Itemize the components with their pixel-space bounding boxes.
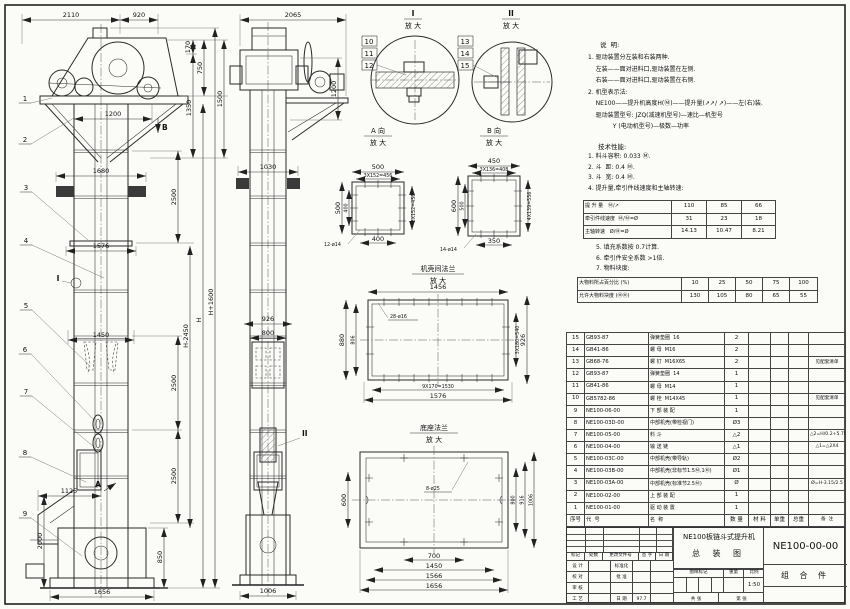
note-line: 右装——面对进料口,驱动装置在右侧. [588, 75, 840, 87]
balloon-5: 5 [24, 302, 28, 310]
marker-b: B [162, 123, 168, 132]
cell [789, 333, 809, 345]
rev-col-date: 日 期 [656, 552, 673, 560]
cell [771, 490, 789, 502]
drawing-title: 总 装 图 [674, 548, 764, 559]
cell [771, 393, 789, 405]
note-line: 驱动装置型号: JZQ(减速机型号)—速比—机型号 [588, 110, 840, 122]
cell: 见配套清单 [809, 393, 846, 405]
empty-cell [764, 586, 847, 604]
dim-fl-1456: 1456 [430, 283, 447, 291]
balloon-12: 12 [365, 62, 374, 70]
cell: △1=△2X4 [809, 442, 846, 454]
detail-II: II 放 大 13 14 15 [458, 9, 552, 122]
stamp-header: 图样标记 重量 比例 [674, 568, 764, 577]
view-b-detail: B 向 放 大 450 3X136=408 600 500 4X139=556 … [440, 126, 533, 253]
balloon-3: 3 [24, 184, 28, 192]
cell [809, 417, 846, 429]
cell [749, 357, 771, 369]
note2-line: 5. 填充系数按 0.7计算. [596, 243, 836, 254]
cell [749, 466, 771, 478]
cell: 8.21 [742, 226, 776, 239]
bom-header-row: 序号 代 号 名 称 数 量 材 料 单重 总重 备 注 [567, 515, 846, 527]
bom-row: 7NE100-05-00料 斗△2△2=H/0.2+5.75 [567, 430, 846, 442]
cell: 110 [672, 201, 707, 214]
balloon-10: 10 [365, 38, 374, 46]
cell [749, 369, 771, 381]
dim-side-926: 926 [262, 315, 274, 323]
cell [749, 381, 771, 393]
view-b-zoom-label: 放 大 [486, 138, 502, 147]
cell: 100 [790, 278, 818, 291]
dim-front-2500b: 2500 [170, 375, 178, 392]
cell: 中部机壳(带检视门) [649, 417, 725, 429]
bom-row: 6NE100-04-00输 送 链△1△1=△2X4 [567, 442, 846, 454]
side-view-dimensions: 2065 1200 1030 926 800 1006 II [238, 11, 346, 600]
dim-fl-806: 806 [351, 335, 357, 344]
cell [789, 405, 809, 417]
balloon-13: 13 [461, 38, 470, 46]
cell: 螺 母 M14 [649, 381, 725, 393]
dim-a-456-right: 3X152=456 [411, 194, 417, 223]
speed-table-row: 提 升 量 Ⓜ/↗1108566 [584, 201, 776, 214]
cell: 14 [567, 345, 585, 357]
cell [789, 490, 809, 502]
cell [789, 369, 809, 381]
cell: 5 [567, 454, 585, 466]
dim-b-500: 500 [460, 201, 466, 210]
dim-a-500-top: 500 [372, 163, 384, 171]
cell: 弹簧垫圈 14 [649, 369, 725, 381]
marker-a: A [95, 480, 101, 489]
product-name: NE100板链斗式提升机 [674, 532, 764, 542]
balloon-7: 7 [24, 388, 28, 396]
cell: 提 升 量 Ⓜ/↗ [584, 201, 672, 214]
dim-fl-1576: 1576 [430, 392, 447, 400]
cell: 弹簧垫圈 16 [649, 333, 725, 345]
cell: 18 [742, 213, 776, 226]
lump-size-table: 大物料所占百分比 (%)10255075100允许大物料块度 (ⓂⓂ)13010… [577, 277, 818, 303]
cell: 料 斗 [649, 430, 725, 442]
cell [809, 490, 846, 502]
front-view-dimensions: 2110 920 170 750 1350 1500 1200 B 1680 2… [22, 11, 228, 601]
cell: Ø=H-3.15/2.5 [809, 478, 846, 490]
cell [771, 417, 789, 429]
dim-fl-holes: 28-ø16 [390, 314, 407, 320]
cell: 23 [707, 213, 742, 226]
dim-bs-1450: 1450 [426, 562, 443, 570]
bom-row: 9NE100-06-00下 部 装 配1 [567, 405, 846, 417]
cell: 10 [682, 278, 709, 291]
cell [771, 454, 789, 466]
dim-front-750: 750 [196, 62, 204, 74]
cell [749, 417, 771, 429]
bom-header-remark: 备 注 [809, 515, 846, 527]
cell [771, 478, 789, 490]
bom-header-qty: 数 量 [725, 515, 749, 527]
cell: 允许大物料块度 (ⓂⓂ) [578, 290, 682, 303]
note-line: Y (电动机型号)—极数—功率 [588, 121, 840, 133]
view-a-label: A 向 [371, 126, 385, 135]
dim-a-456-top: 3X152=456 [364, 173, 393, 179]
cell: 14.13 [672, 226, 707, 239]
dim-b-556: 4X139=556 [527, 192, 533, 221]
cell [749, 454, 771, 466]
detail-2-label: II [508, 9, 514, 18]
dim-bs-600: 600 [340, 494, 348, 506]
cell: Ø [725, 478, 749, 490]
dim-front-1200: 1200 [105, 110, 122, 118]
dim-front-1125: 1125 [61, 487, 78, 495]
cell: 1 [725, 490, 749, 502]
detail-2-zoom-label: 放 大 [503, 21, 519, 30]
dim-front-850: 850 [156, 551, 164, 563]
dim-fl-926: 926 [519, 334, 527, 346]
note-line: NE100——提升机高度H(Ⓜ)——提升量(↗↗/ ↗)——左(右)装. [588, 98, 840, 110]
bom-row: 12GB93-87弹簧垫圈 141 [567, 369, 846, 381]
dim-b-408: 3X136=408 [480, 167, 509, 173]
cell [809, 381, 846, 393]
cell [749, 345, 771, 357]
title-zone: NE100板链斗式提升机 总 装 图 图样标记 重量 比例 1:50 共 张 第… [673, 528, 763, 604]
dim-a-400-left: 400 [344, 203, 350, 212]
revision-grid [567, 528, 673, 552]
note-line: 1. 驱动装置分左装和右装两种. [588, 52, 840, 64]
dim-fl-880: 880 [338, 334, 346, 346]
bom-row: 14GB41-86螺 母 M162 [567, 345, 846, 357]
cell: Ø3 [725, 417, 749, 429]
cell: GB93-87 [585, 369, 649, 381]
detail-1-label: I [412, 9, 415, 18]
label-check: 校 对 [567, 571, 589, 582]
dim-front-1576: 1576 [93, 242, 110, 250]
label-audit-2 [611, 582, 633, 593]
cell: 10 [567, 393, 585, 405]
label-process: 工 艺 [567, 593, 589, 604]
balloon-8: 8 [23, 449, 27, 457]
cell: 1 [725, 381, 749, 393]
cell [789, 357, 809, 369]
view-a-zoom-label: 放 大 [370, 138, 386, 147]
revision-header: 标记 处数 更改文件号 签 字 日 期 [567, 552, 673, 560]
cell: 13 [567, 357, 585, 369]
cell [809, 369, 846, 381]
note2-line: 7. 物料块度: [596, 264, 836, 275]
cell: 2 [725, 333, 749, 345]
dim-side-1006: 1006 [260, 587, 277, 595]
cell: 中部机壳(带导轨) [649, 454, 725, 466]
balloon-1: 1 [23, 95, 27, 103]
cell: 75 [763, 278, 790, 291]
speed-table-row: 牵引件线速度 Ⓜ/Ⓜ=Ø312318 [584, 213, 776, 226]
cell: NE100-03D-00 [585, 417, 649, 429]
dim-bs-916: 916 [520, 495, 526, 504]
cell [749, 442, 771, 454]
balloon-4: 4 [24, 237, 29, 245]
bom-row: 11GB41-86螺 母 M141 [567, 381, 846, 393]
cell [749, 430, 771, 442]
bom-header-total-weight: 总重 [789, 515, 809, 527]
marker-ii: II [302, 429, 308, 438]
cell [809, 405, 846, 417]
cell: 输 送 链 [649, 442, 725, 454]
drawing-number: NE100-00-00 [764, 528, 847, 564]
dim-bs-holes: 8-ø25 [426, 486, 440, 492]
cell: 2 [725, 345, 749, 357]
cell [809, 466, 846, 478]
notes-title: 说 明: [600, 40, 619, 52]
cell: 1 [725, 393, 749, 405]
dim-b-600: 600 [450, 200, 458, 212]
bom-row: 10GB5782-86螺 栓 M14X451见配套清单 [567, 393, 846, 405]
detail-2-balloons: 13 14 15 [458, 36, 498, 78]
cell [789, 454, 809, 466]
cell [789, 417, 809, 429]
part-type: 组 合 件 [764, 564, 847, 586]
notes2-list: 5. 填充系数按 0.7计算.6. 牵引件安全系数 >1倍.7. 物料块度: [596, 243, 836, 275]
cell: NE100-05-00 [585, 430, 649, 442]
cell: NE100-01-00 [585, 502, 649, 514]
sign-row-audit: 审 核 [567, 582, 673, 593]
sheet-count-row: 共 张 第 张 [674, 592, 764, 604]
cell: 1 [725, 369, 749, 381]
engineering-drawing-sheet: 2110 920 170 750 1350 1500 1200 B 1680 2… [0, 0, 850, 609]
dim-front-1656: 1656 [94, 588, 111, 596]
view-a-detail: A 向 放 大 500 3X152=456 500 400 3X152=456 … [324, 126, 417, 248]
cell [789, 345, 809, 357]
cell: △2=H/0.2+5.75 [809, 430, 846, 442]
cell: 10.47 [707, 226, 742, 239]
cell: 1 [725, 502, 749, 514]
cell: △2 [725, 430, 749, 442]
rev-col-count: 处数 [585, 552, 603, 560]
cell: 6 [567, 442, 585, 454]
cell: 螺 母 M16 [649, 345, 725, 357]
balloon-9: 9 [23, 510, 27, 518]
cell [749, 502, 771, 514]
cell: 中部机壳(非标节1.5Ⓜ,1Ⓜ) [649, 466, 725, 478]
cell: GB93-87 [585, 333, 649, 345]
cell: NE100-03C-00 [585, 454, 649, 466]
cell: Ø2 [725, 454, 749, 466]
sheet-total: 共 张 [674, 592, 719, 604]
cell [809, 345, 846, 357]
cell [789, 478, 809, 490]
cell [809, 333, 846, 345]
cell: NE100-02-00 [585, 490, 649, 502]
cell [809, 454, 846, 466]
dim-front-1450: 1450 [93, 331, 110, 339]
cell [771, 357, 789, 369]
parts-list-table: 15GB93-87弹簧垫圈 16214GB41-86螺 母 M16213GB68… [566, 332, 846, 527]
cell: 15 [567, 333, 585, 345]
bom-header-name: 名 称 [649, 515, 725, 527]
cell [749, 405, 771, 417]
cell [771, 381, 789, 393]
dim-bs-1656: 1656 [426, 582, 443, 590]
cell: 3 [567, 478, 585, 490]
cell: 25 [709, 278, 736, 291]
sheet-number: 第 张 [719, 592, 764, 604]
balloon-2: 2 [23, 136, 27, 144]
capacity-speed-table: 提 升 量 Ⓜ/↗1108566牵引件线速度 Ⓜ/Ⓜ=Ø312318主轴转速 Ø… [583, 200, 776, 239]
note-line: 2. 机型表示法: [588, 87, 840, 99]
bom-header-code: 代 号 [585, 515, 649, 527]
dim-front-2500a: 2500 [170, 189, 178, 206]
label-scale: 比例 [744, 569, 764, 577]
tech-line: 2. 斗 距: 0.4 Ⓜ. [588, 163, 840, 174]
dim-front-2000: 2000 [36, 533, 44, 550]
dim-b-350: 350 [488, 237, 500, 245]
cell: 9 [567, 405, 585, 417]
cell [771, 466, 789, 478]
cell: 牵引件线速度 Ⓜ/Ⓜ=Ø [584, 213, 672, 226]
bom-row: 4NE100-03B-00中部机壳(非标节1.5Ⓜ,1Ⓜ)Ø1 [567, 466, 846, 478]
detail-1-balloons: 10 11 12 [362, 36, 406, 75]
marker-i: I [57, 274, 60, 283]
dim-b-holes: 14-ø14 [440, 247, 457, 253]
bom-header-seq: 序号 [567, 515, 585, 527]
cell: 65 [763, 290, 790, 303]
cell [789, 466, 809, 478]
cell [749, 478, 771, 490]
cell: 见配套清单 [809, 357, 846, 369]
cell: △1 [725, 442, 749, 454]
bom-row: 13GB68-76螺 钉 M16X652见配套清单 [567, 357, 846, 369]
dim-bs-700: 700 [428, 552, 440, 560]
base-zoom-label: 放 大 [426, 435, 442, 444]
cell: 4 [567, 466, 585, 478]
bom-row: 8NE100-03D-00中部机壳(带检视门)Ø3 [567, 417, 846, 429]
lump-table-row: 大物料所占百分比 (%)10255075100 [578, 278, 818, 291]
cell: 11 [567, 381, 585, 393]
dim-bs-800: 800 [511, 495, 517, 504]
bom-row: 2NE100-02-00上 部 装 配1 [567, 490, 846, 502]
cell: 130 [682, 290, 709, 303]
cell: 7 [567, 430, 585, 442]
label-design: 设 计 [567, 560, 589, 571]
label-audit: 审 核 [567, 582, 589, 593]
cell [749, 490, 771, 502]
cell: GB68-76 [585, 357, 649, 369]
cell: 主轴转速 Ø/Ⓜ=Ø [584, 226, 672, 239]
cell: 12 [567, 369, 585, 381]
rev-col-mark: 标记 [567, 552, 585, 560]
casing-flange-detail: 机壳间法兰 放 大 1456 28-ø16 880 806 3X180=540 … [338, 264, 527, 403]
cell: 55 [790, 290, 818, 303]
side-view [230, 22, 348, 598]
cell: 大物料所占百分比 (%) [578, 278, 682, 291]
flange-label: 机壳间法兰 [421, 264, 456, 273]
cell [789, 393, 809, 405]
bom-row: 1NE100-01-00驱 动 装 置1 [567, 502, 846, 514]
dim-side-1030: 1030 [260, 163, 277, 171]
sign-row-check: 校 对 批 准 [567, 571, 673, 582]
tech-list: 1. 料斗容积: 0.033 Ⓜ.2. 斗 距: 0.4 Ⓜ.3. 斗 宽: 0… [588, 152, 840, 194]
dim-side-800: 800 [262, 329, 274, 337]
cell: NE100-03A-00 [585, 478, 649, 490]
cell: 中部机壳(标准节2.5Ⓜ) [649, 478, 725, 490]
label-standardization: 标准化 [611, 560, 633, 571]
dim-front-1500: 1500 [216, 91, 224, 108]
bom-row: 3NE100-03A-00中部机壳(标准节2.5Ⓜ)ØØ=H-3.15/2.5 [567, 478, 846, 490]
cell [771, 333, 789, 345]
tech-line: 4. 提升量,牵引件线速度和主轴转速: [588, 184, 840, 195]
cell: 31 [672, 213, 707, 226]
cell: 105 [709, 290, 736, 303]
stamp-boxes: 1:50 [674, 577, 764, 592]
dim-side-2065: 2065 [285, 11, 302, 19]
cell: GB41-86 [585, 381, 649, 393]
cell: 2 [725, 357, 749, 369]
balloon-11: 11 [365, 50, 374, 58]
balloon-15: 15 [461, 62, 470, 70]
bom-row: 5NE100-03C-00中部机壳(带导轨)Ø2 [567, 454, 846, 466]
label-weight: 重量 [724, 569, 744, 577]
cell: 螺 栓 M14X45 [649, 393, 725, 405]
dim-a-400-bottom: 400 [372, 235, 384, 243]
dim-a-holes: 12-ø14 [324, 242, 341, 248]
cell [771, 430, 789, 442]
label-date: 日 期 [611, 593, 633, 604]
base-label: 底座法兰 [420, 423, 448, 432]
lump-table-row: 允许大物料块度 (ⓂⓂ)130105806555 [578, 290, 818, 303]
tech-line: 1. 料斗容积: 0.033 Ⓜ. [588, 152, 840, 163]
balloon-14: 14 [461, 50, 470, 58]
dim-bs-1566: 1566 [426, 572, 443, 580]
bom-row: 15GB93-87弹簧垫圈 162 [567, 333, 846, 345]
label-approve: 批 准 [611, 571, 633, 582]
note-line: 左装——面对进料口,驱动装置在左侧. [588, 64, 840, 76]
detail-I: I 放 大 10 11 12 [362, 9, 459, 124]
dim-front-2500c: 2500 [170, 468, 178, 485]
cell: GB41-86 [585, 345, 649, 357]
cell: NE100-06-00 [585, 405, 649, 417]
cell [749, 393, 771, 405]
view-b-label: B 向 [487, 126, 501, 135]
title-block: 标记 处数 更改文件号 签 字 日 期 设 计 标准化 校 对 批 准 审 核 … [566, 527, 845, 603]
cell: 8 [567, 417, 585, 429]
cell: 80 [736, 290, 763, 303]
cell [771, 405, 789, 417]
number-zone: NE100-00-00 组 合 件 [763, 528, 846, 604]
dim-a-500-left: 500 [334, 202, 342, 214]
cell [789, 430, 809, 442]
rev-col-docno: 更改文件号 [603, 552, 639, 560]
cell: 66 [742, 201, 776, 214]
cell: 85 [707, 201, 742, 214]
dim-front-2110: 2110 [63, 11, 80, 19]
cell: Ø1 [725, 466, 749, 478]
dim-side-1200: 1200 [330, 81, 338, 98]
cell: GB5782-86 [585, 393, 649, 405]
cell: 1 [725, 405, 749, 417]
dim-front-h-2450: H-2450 [182, 324, 190, 348]
balloon-6: 6 [23, 346, 28, 354]
sign-row-process: 工 艺 日 期 97.7 [567, 593, 673, 604]
cell: NE100-04-00 [585, 442, 649, 454]
base-flange-detail: 底座法兰 放 大 8-ø25 600 800 916 1006 700 1450… [340, 423, 535, 593]
bom-header-unit-weight: 单重 [771, 515, 789, 527]
dim-front-170: 170 [184, 41, 192, 53]
cell [789, 502, 809, 514]
speed-table-row: 主轴转速 Ø/Ⓜ=Ø14.1310.478.21 [584, 226, 776, 239]
cell: 螺 钉 M16X65 [649, 357, 725, 369]
cell: 1 [567, 502, 585, 514]
date-value: 97.7 [633, 593, 651, 604]
sign-row-design: 设 计 标准化 [567, 560, 673, 571]
bom-header-material: 材 料 [749, 515, 771, 527]
